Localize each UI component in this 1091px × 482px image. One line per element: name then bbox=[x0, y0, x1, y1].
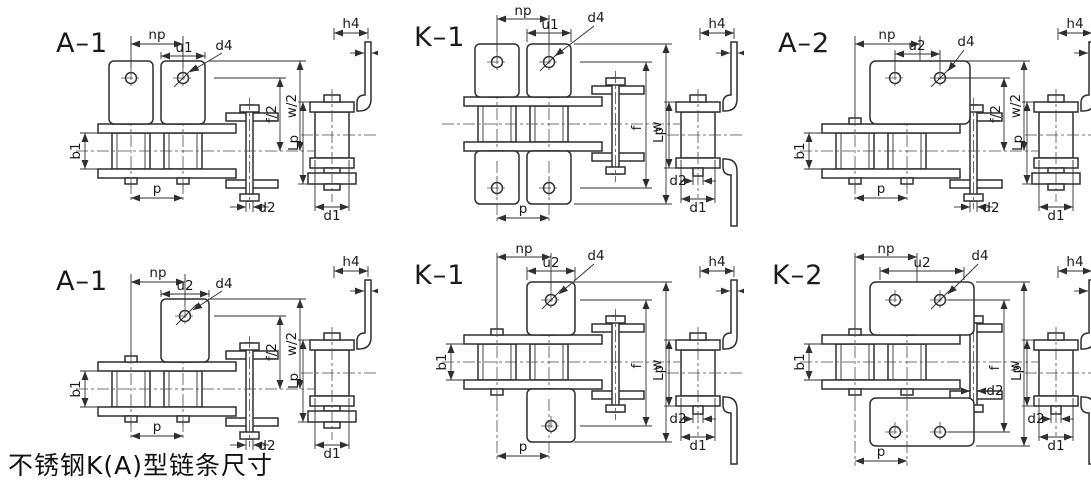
panel-title: A–2 bbox=[778, 28, 830, 59]
dim-label-d1: d1 bbox=[323, 446, 340, 462]
chain-side-view bbox=[664, 266, 744, 464]
dim-label-w-half: w/2 bbox=[284, 332, 300, 356]
dim-label-w-half: w/2 bbox=[1008, 94, 1024, 118]
dimension-u1: u1 bbox=[161, 40, 205, 59]
dim-label-np: np bbox=[514, 6, 531, 19]
dim-label-d1: d1 bbox=[689, 438, 706, 454]
dim-label-d2-side: d2 bbox=[1027, 411, 1044, 427]
dim-label-d2: d2 bbox=[669, 411, 686, 427]
dim-label-p: p bbox=[519, 439, 528, 455]
dim-label-lp: Lp bbox=[1009, 365, 1025, 381]
chain-side-view bbox=[298, 266, 378, 449]
page-caption: 不锈钢K(A)型链条尺寸 bbox=[8, 446, 273, 482]
panel-title: A–1 bbox=[56, 266, 108, 297]
dim-label-d2: d2 bbox=[982, 200, 999, 216]
dimension-u2: u2 bbox=[161, 278, 209, 297]
dim-label-d2: d2 bbox=[669, 173, 686, 189]
dim-label-b1: b1 bbox=[792, 142, 808, 159]
dim-label-u2: u2 bbox=[913, 255, 930, 271]
dimension-u2: u2 bbox=[880, 255, 964, 280]
drawing-k1-double-plate: K–1 np u1 d4 f w p h4 Lp d2 d1 bbox=[384, 6, 744, 236]
dim-label-p: p bbox=[153, 419, 162, 435]
dim-label-b1: b1 bbox=[434, 353, 450, 370]
dim-label-lp: Lp bbox=[651, 127, 667, 143]
dim-label-f: f bbox=[629, 362, 645, 368]
dim-label-d2: d2 bbox=[986, 383, 1003, 399]
panel-title: K–1 bbox=[414, 22, 465, 53]
attachment-plate bbox=[527, 389, 575, 442]
dim-label-h4: h4 bbox=[1066, 16, 1083, 32]
dim-label-f: f bbox=[987, 364, 1003, 370]
attachment-plate bbox=[870, 282, 974, 335]
dim-label-d2: d2 bbox=[258, 200, 275, 216]
dim-label-d1: d1 bbox=[689, 200, 706, 216]
dim-label-d4: d4 bbox=[587, 248, 604, 264]
dim-label-lp: Lp bbox=[1010, 135, 1026, 151]
chain-side-view bbox=[1022, 28, 1091, 211]
dim-label-d4: d4 bbox=[957, 34, 974, 50]
dim-label-h4: h4 bbox=[708, 254, 725, 270]
dim-label-u2: u2 bbox=[542, 255, 559, 271]
dim-label-d4: d4 bbox=[971, 248, 988, 264]
dim-label-u1: u1 bbox=[175, 40, 192, 56]
dim-label-lp: Lp bbox=[286, 135, 302, 151]
dim-label-b1: b1 bbox=[68, 142, 84, 159]
panel-title: K–2 bbox=[772, 260, 823, 291]
dim-label-u2: u2 bbox=[176, 278, 193, 294]
dim-label-h4: h4 bbox=[342, 16, 359, 32]
chain-side-view bbox=[1022, 266, 1091, 464]
drawing-a1-double-plate: A–1 np u1 d4 f/2 w/2 b1 p d2 h4 Lp d1 bbox=[18, 6, 378, 236]
dim-label-lp: Lp bbox=[286, 373, 302, 389]
dim-label-np: np bbox=[515, 244, 532, 257]
dim-label-h4: h4 bbox=[708, 16, 725, 32]
dim-label-p: p bbox=[153, 181, 162, 197]
attachment-plate bbox=[870, 398, 974, 446]
drawing-k1-single-plate: K–1 np u2 d4 f w b1 p h4 Lp d2 d1 bbox=[384, 244, 744, 474]
dim-label-p: p bbox=[519, 201, 528, 217]
drawing-a1-single-plate: A–1 np u2 d4 f/2 w/2 b1 p d2 h4 Lp d1 bbox=[18, 244, 378, 474]
dim-label-np: np bbox=[149, 265, 166, 281]
dim-label-h4: h4 bbox=[1066, 254, 1083, 270]
dim-label-f-half: f/2 bbox=[988, 105, 1004, 123]
chain-side-view bbox=[298, 28, 378, 211]
dim-label-d1: d1 bbox=[323, 208, 340, 224]
panel-title: K–1 bbox=[414, 260, 465, 291]
dim-label-np: np bbox=[148, 27, 165, 43]
dim-label-b1: b1 bbox=[792, 353, 808, 370]
dim-label-u2: u2 bbox=[908, 38, 925, 54]
dim-label-d1: d1 bbox=[1047, 438, 1064, 454]
dim-label-h4: h4 bbox=[342, 254, 359, 270]
dim-label-b1: b1 bbox=[68, 380, 84, 397]
dim-label-p: p bbox=[877, 444, 886, 460]
dim-label-np: np bbox=[878, 27, 895, 43]
chain-side-view bbox=[664, 28, 744, 226]
dim-label-d4: d4 bbox=[587, 10, 604, 26]
dim-label-d1: d1 bbox=[1047, 208, 1064, 224]
drawing-a2-wide-plate: A–2 np u2 d4 f/2 w/2 b1 p d2 h4 Lp d1 bbox=[742, 6, 1091, 236]
dim-label-u1: u1 bbox=[541, 17, 558, 33]
dim-label-lp: Lp bbox=[651, 365, 667, 381]
dim-label-f-half: f/2 bbox=[264, 105, 280, 123]
dim-label-f: f bbox=[629, 124, 645, 130]
dim-label-d4: d4 bbox=[215, 38, 232, 54]
drawing-k2-wide-plate: K–2 np u2 d4 f w b1 p bbox=[742, 244, 1091, 474]
panel-title: A–1 bbox=[56, 28, 108, 59]
attachment-plate bbox=[870, 61, 970, 124]
dim-label-f-half: f/2 bbox=[264, 343, 280, 361]
dim-label-d4: d4 bbox=[215, 276, 232, 292]
dim-label-np: np bbox=[877, 244, 894, 257]
dim-label-w-half: w/2 bbox=[284, 94, 300, 118]
dim-label-p: p bbox=[877, 181, 886, 197]
